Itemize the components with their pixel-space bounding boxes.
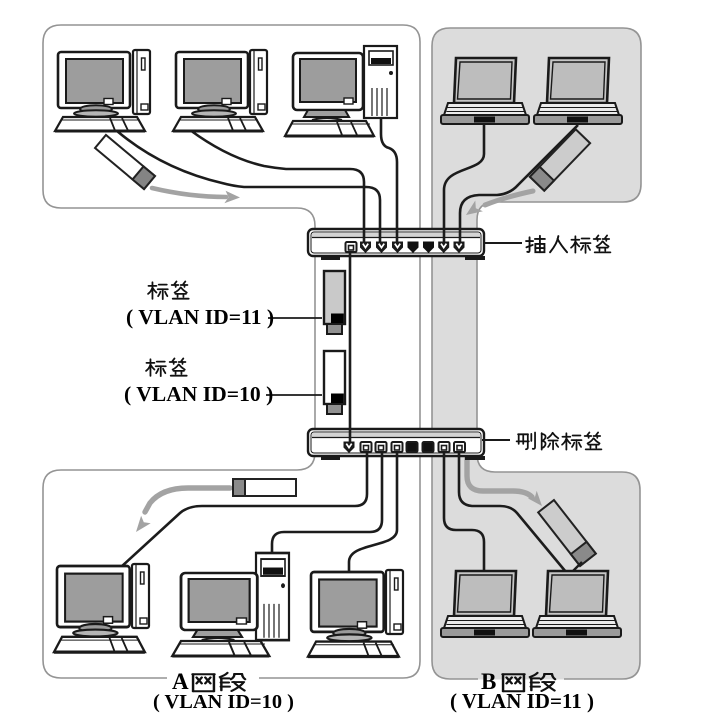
svg-text:( VLAN ID=10 ): ( VLAN ID=10 ) <box>124 382 273 406</box>
svg-text:( VLAN ID=11 ): ( VLAN ID=11 ) <box>450 689 594 713</box>
svg-text:( VLAN ID=11 ): ( VLAN ID=11 ) <box>126 305 274 329</box>
svg-text:( VLAN ID=10 ): ( VLAN ID=10 ) <box>153 691 294 713</box>
